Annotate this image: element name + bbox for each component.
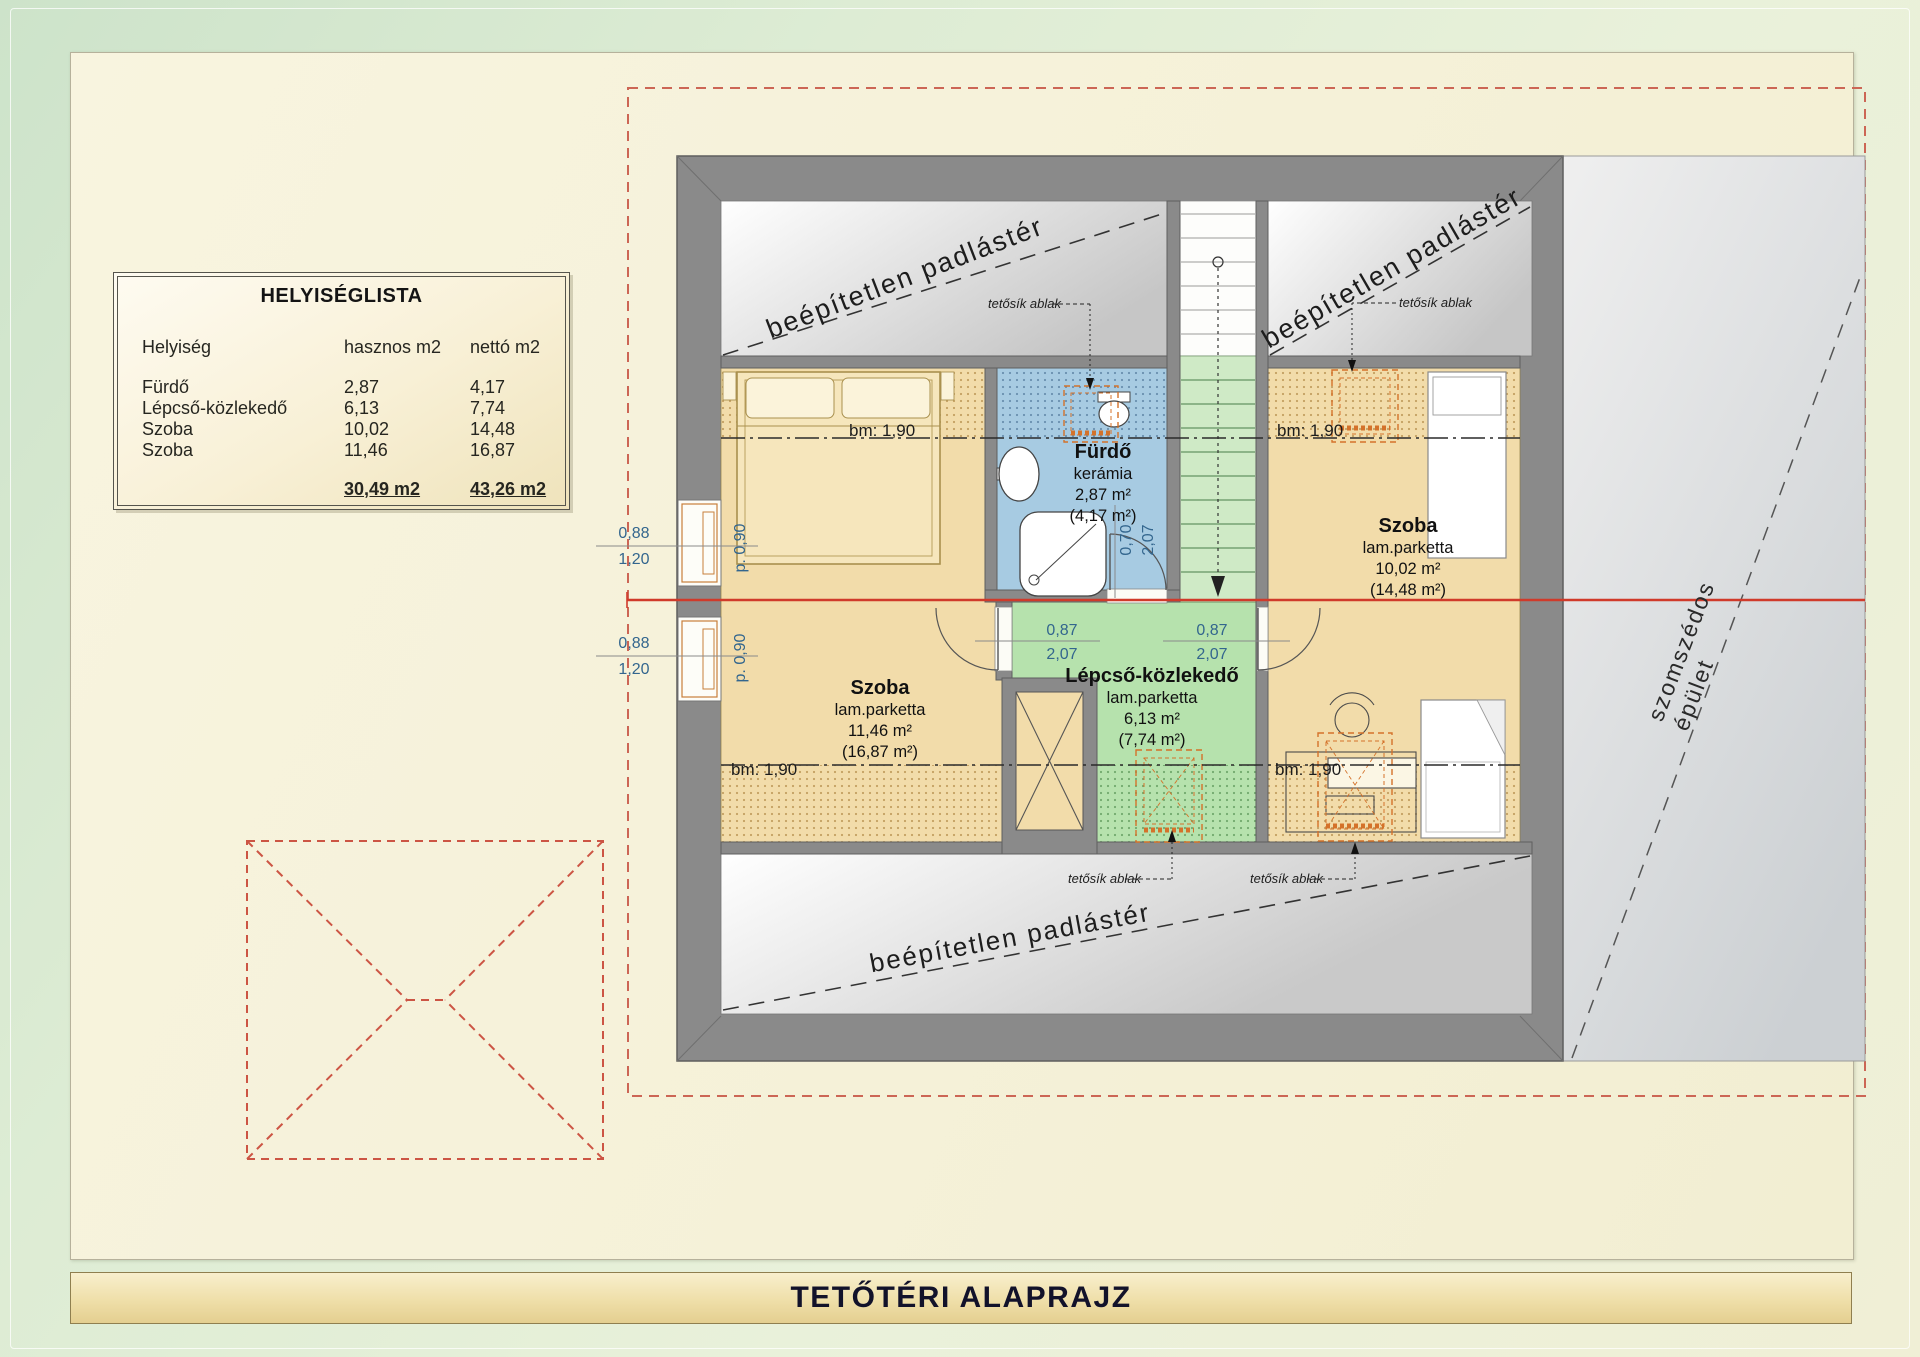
row-name: Szoba: [142, 419, 193, 440]
row-net: 7,74: [470, 398, 505, 419]
row-useful: 11,46: [344, 440, 388, 461]
door-height-dim: 2,07: [1196, 646, 1227, 664]
door-width-dim: 0,87: [1196, 622, 1227, 640]
row-useful: 2,87: [344, 377, 379, 398]
row-net: 4,17: [470, 377, 505, 398]
room-finish: lam.parketta: [1065, 688, 1238, 709]
room-area-net: (16,87 m²): [835, 742, 926, 763]
row-name: Szoba: [142, 440, 193, 461]
headroom-label: bm: 1,90: [1275, 760, 1341, 780]
headroom-label: bm: 1,90: [1277, 421, 1343, 441]
room-area: 6,13 m²: [1065, 709, 1238, 730]
door-height-dim: 2,07: [1046, 646, 1077, 664]
window-parapet-dim: p. 0,90: [732, 634, 750, 683]
row-name: Fürdő: [142, 377, 189, 398]
toilet: [1098, 392, 1130, 427]
room-name: Szoba: [1363, 514, 1454, 538]
roof-window-label: tetősík ablak: [1250, 871, 1323, 886]
row-name: Lépcső-közlekedő: [142, 398, 287, 419]
staircase: [1180, 201, 1256, 602]
window-height-dim: 1,20: [618, 551, 649, 569]
total-net: 43,26 m2: [470, 479, 546, 500]
title-bar: TETŐTÉRI ALAPRAJZ: [70, 1272, 1852, 1324]
hall-label: Lépcső-közlekedő lam.parketta 6,13 m² (7…: [1065, 664, 1238, 751]
headroom-label: bm: 1,90: [731, 760, 797, 780]
double-bed: [723, 372, 954, 564]
window-left-lower: [678, 617, 721, 701]
row-useful: 10,02: [344, 419, 389, 440]
drawing-title: TETŐTÉRI ALAPRAJZ: [790, 1281, 1131, 1315]
roof-window-label: tetősík ablak: [1399, 295, 1472, 310]
room-name: Lépcső-közlekedő: [1065, 664, 1238, 688]
row-net: 16,87: [470, 440, 515, 461]
floor-plan-sheet: HELYISÉGLISTA Helyiség hasznos m2 nettó …: [0, 0, 1920, 1357]
room-name: Szoba: [835, 676, 926, 700]
door-width-dim: 0,87: [1046, 622, 1077, 640]
room-area-net: (7,74 m²): [1065, 730, 1238, 751]
room-area: 10,02 m²: [1363, 559, 1454, 580]
window-width-dim: 0,88: [618, 635, 649, 653]
bath-door-height-dim: 2,07: [1140, 524, 1158, 555]
bedroom-right-label: Szoba lam.parketta 10,02 m² (14,48 m²): [1363, 514, 1454, 601]
bedroom-left-label: Szoba lam.parketta 11,46 m² (16,87 m²): [835, 676, 926, 763]
bath-door-width-dim: 0,70: [1118, 524, 1136, 555]
col-header-useful: hasznos m2: [344, 337, 441, 358]
total-useful: 30,49 m2: [344, 479, 420, 500]
room-finish: lam.parketta: [1363, 538, 1454, 559]
bathroom-label: Fürdő kerámia 2,87 m² (4,17 m²): [1070, 440, 1137, 527]
bed-right-bottom: [1421, 700, 1505, 838]
window-width-dim: 0,88: [618, 525, 649, 543]
row-net: 14,48: [470, 419, 515, 440]
col-header-net: nettó m2: [470, 337, 540, 358]
col-header-room: Helyiség: [142, 337, 211, 358]
room-finish: kerámia: [1070, 464, 1137, 485]
room-area: 2,87 m²: [1070, 485, 1137, 506]
room-list-title: HELYISÉGLISTA: [114, 285, 569, 308]
room-name: Fürdő: [1070, 440, 1137, 464]
room-finish: lam.parketta: [835, 700, 926, 721]
room-area: 11,46 m²: [835, 721, 926, 742]
window-parapet-dim: p. 0,90: [732, 524, 750, 573]
window-height-dim: 1,20: [618, 661, 649, 679]
plan-drawing: [0, 0, 1920, 1357]
room-list-table: HELYISÉGLISTA Helyiség hasznos m2 nettó …: [113, 272, 570, 510]
hip-roof-outline: [247, 841, 603, 1159]
window-left-upper: [678, 500, 721, 586]
headroom-label: bm: 1,90: [849, 421, 915, 441]
roof-window-label: tetősík ablak: [988, 296, 1061, 311]
row-useful: 6,13: [344, 398, 379, 419]
room-area-net: (14,48 m²): [1363, 580, 1454, 601]
roof-window-label: tetősík ablak: [1068, 871, 1141, 886]
